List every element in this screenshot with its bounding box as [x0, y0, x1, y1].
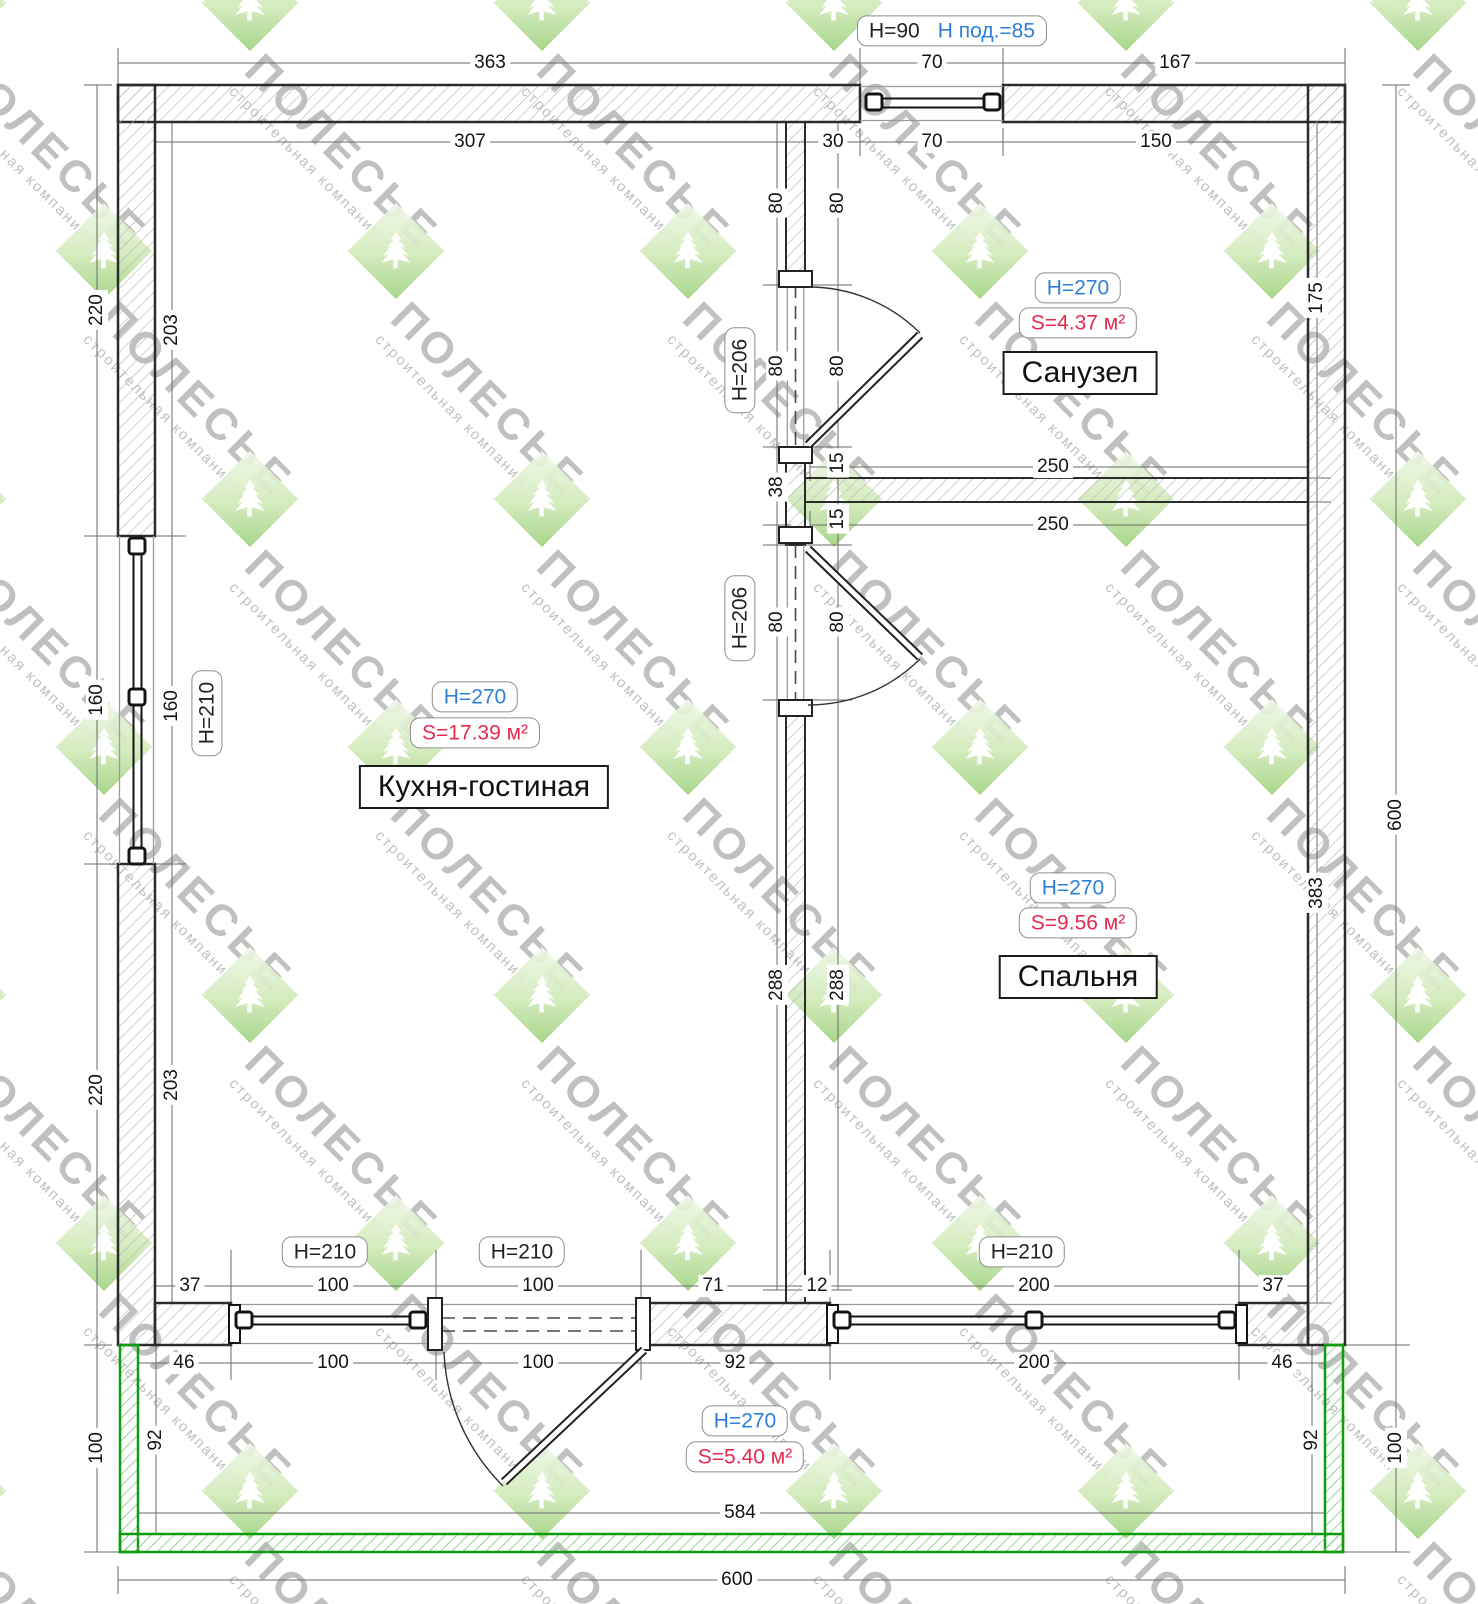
- dimension-label: 92: [720, 1352, 749, 1374]
- labels-layer: 3637016730730701502201602202031602038080…: [0, 0, 1478, 1604]
- kitchen-height-label: H=270: [432, 681, 518, 712]
- top-window-height: H=90: [869, 19, 920, 42]
- left-window-height-label: H=210: [191, 670, 222, 756]
- dimension-label: 600: [717, 1569, 757, 1591]
- dimension-label: 150: [1136, 131, 1176, 153]
- dimension-label: 100: [86, 1428, 108, 1468]
- dimension-label: 100: [518, 1352, 558, 1374]
- dimension-label: 160: [86, 680, 108, 720]
- dimension-label: 15: [827, 504, 849, 533]
- dimension-label: 70: [917, 52, 946, 74]
- dimension-label: 37: [1258, 1275, 1287, 1297]
- dimension-label: 46: [169, 1352, 198, 1374]
- dimension-label: 175: [1306, 278, 1328, 318]
- bedroom-height-label: H=270: [1030, 872, 1116, 903]
- bedroom-door-height-label: H=206: [724, 575, 755, 661]
- dimension-label: 30: [818, 131, 847, 153]
- bedroom-area-label: S=9.56 м²: [1019, 907, 1137, 938]
- dimension-label: 80: [766, 188, 788, 217]
- dimension-label: 100: [313, 1275, 353, 1297]
- dimension-label: 220: [86, 290, 108, 330]
- kitchen-room-name: Кухня-гостиная: [359, 765, 609, 809]
- dimension-label: 250: [1033, 514, 1073, 536]
- dimension-label: 70: [917, 131, 946, 153]
- dimension-label: 584: [720, 1502, 760, 1524]
- dimension-label: 200: [1014, 1352, 1054, 1374]
- dimension-label: 12: [802, 1275, 831, 1297]
- dimension-label: 160: [161, 686, 183, 726]
- floor-plan-page: ПОЛЕСЬЕстроительная компанияПОЛЕСЬЕстрои…: [0, 0, 1478, 1604]
- dimension-label: 92: [145, 1425, 167, 1454]
- dimension-label: 203: [161, 310, 183, 350]
- top-window-sill-height: H под.=85: [938, 19, 1035, 42]
- dimension-label: 38: [766, 472, 788, 501]
- dimension-label: 71: [698, 1275, 727, 1297]
- dimension-label: 307: [450, 131, 490, 153]
- dimension-label: 15: [827, 448, 849, 477]
- dimension-label: 80: [827, 188, 849, 217]
- terrace-height-label: H=270: [702, 1405, 788, 1436]
- dimension-label: 80: [766, 607, 788, 636]
- kitchen-area-label: S=17.39 м²: [410, 717, 540, 748]
- dimension-label: 288: [766, 965, 788, 1005]
- dimension-label: 200: [1014, 1275, 1054, 1297]
- bathroom-room-name: Санузел: [1003, 351, 1158, 395]
- dimension-label: 100: [518, 1275, 558, 1297]
- terrace-area-label: S=5.40 м²: [686, 1441, 804, 1472]
- dimension-label: 203: [161, 1065, 183, 1105]
- dimension-label: 37: [175, 1275, 204, 1297]
- dimension-label: 288: [827, 965, 849, 1005]
- dimension-label: 600: [1385, 795, 1407, 835]
- entrance-door-height-label: H=210: [479, 1236, 565, 1267]
- dimension-label: 363: [470, 52, 510, 74]
- dimension-label: 80: [766, 351, 788, 380]
- kitchen-window-height-label: H=210: [282, 1236, 368, 1267]
- dimension-label: 383: [1306, 873, 1328, 913]
- dimension-label: 80: [827, 351, 849, 380]
- dimension-label: 100: [1385, 1428, 1407, 1468]
- dimension-label: 167: [1155, 52, 1195, 74]
- dimension-label: 92: [1301, 1425, 1323, 1454]
- bathroom-height-label: H=270: [1035, 272, 1121, 303]
- bathroom-door-height-label: H=206: [724, 327, 755, 413]
- dimension-label: 220: [86, 1070, 108, 1110]
- dimension-label: 100: [313, 1352, 353, 1374]
- bathroom-area-label: S=4.37 м²: [1019, 307, 1137, 338]
- dimension-label: 46: [1267, 1352, 1296, 1374]
- bedroom-room-name: Спальня: [999, 955, 1158, 999]
- dimension-label: 250: [1033, 456, 1073, 478]
- dimension-label: 80: [827, 607, 849, 636]
- bedroom-window-height-label: H=210: [979, 1236, 1065, 1267]
- top-window-label: H=90H под.=85: [857, 15, 1047, 46]
